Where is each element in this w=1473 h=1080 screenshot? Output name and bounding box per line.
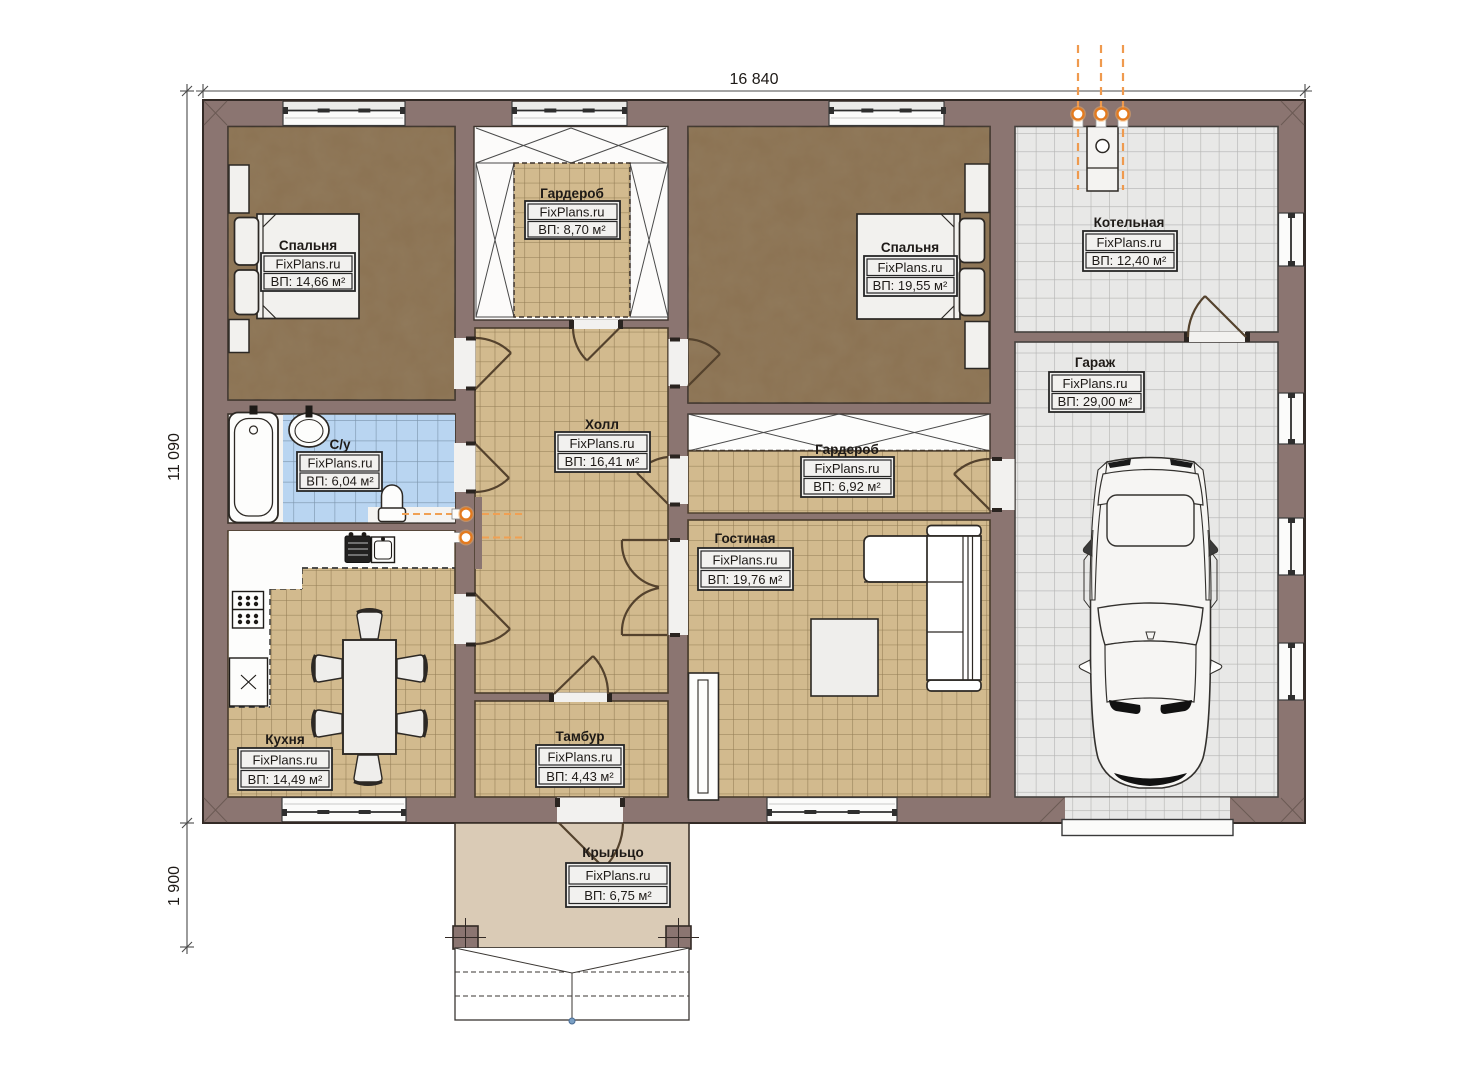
svg-text:FixPlans.ru: FixPlans.ru	[877, 260, 942, 275]
svg-text:ВП: 6,04 м²: ВП: 6,04 м²	[306, 474, 374, 489]
svg-text:ВП: 14,49 м²: ВП: 14,49 м²	[248, 772, 323, 787]
svg-text:ВП: 16,41 м²: ВП: 16,41 м²	[565, 454, 640, 469]
svg-text:ВП: 4,43 м²: ВП: 4,43 м²	[546, 769, 614, 784]
svg-text:ВП: 14,66 м²: ВП: 14,66 м²	[271, 274, 346, 289]
svg-text:ВП: 19,55 м²: ВП: 19,55 м²	[873, 278, 948, 293]
svg-text:FixPlans.ru: FixPlans.ru	[585, 868, 650, 883]
svg-text:С/у: С/у	[329, 437, 351, 452]
svg-text:ВП: 8,70 м²: ВП: 8,70 м²	[538, 222, 606, 237]
svg-text:FixPlans.ru: FixPlans.ru	[569, 436, 634, 451]
svg-text:Спальня: Спальня	[881, 240, 939, 255]
svg-text:ВП: 6,92 м²: ВП: 6,92 м²	[813, 479, 881, 494]
svg-text:FixPlans.ru: FixPlans.ru	[539, 205, 604, 220]
svg-text:FixPlans.ru: FixPlans.ru	[275, 257, 340, 272]
svg-text:ВП: 12,40 м²: ВП: 12,40 м²	[1092, 253, 1167, 268]
svg-text:ВП: 19,76 м²: ВП: 19,76 м²	[708, 572, 783, 587]
svg-text:FixPlans.ru: FixPlans.ru	[1062, 376, 1127, 391]
svg-text:Гардероб: Гардероб	[540, 186, 604, 201]
svg-text:Котельная: Котельная	[1094, 215, 1165, 230]
svg-text:Холл: Холл	[585, 417, 619, 432]
svg-text:Гостиная: Гостиная	[714, 531, 775, 546]
svg-text:FixPlans.ru: FixPlans.ru	[547, 750, 612, 765]
svg-text:Крыльцо: Крыльцо	[582, 845, 643, 860]
svg-text:FixPlans.ru: FixPlans.ru	[712, 553, 777, 568]
svg-text:FixPlans.ru: FixPlans.ru	[814, 461, 879, 476]
svg-text:1 900: 1 900	[166, 866, 183, 906]
svg-text:FixPlans.ru: FixPlans.ru	[1096, 235, 1161, 250]
svg-text:ВП: 6,75 м²: ВП: 6,75 м²	[584, 888, 652, 903]
svg-text:Гараж: Гараж	[1075, 355, 1116, 370]
svg-text:Тамбур: Тамбур	[556, 729, 605, 744]
svg-text:FixPlans.ru: FixPlans.ru	[307, 456, 372, 471]
svg-text:Спальня: Спальня	[279, 238, 337, 253]
svg-text:Гардероб: Гардероб	[815, 442, 879, 457]
svg-text:ВП: 29,00 м²: ВП: 29,00 м²	[1058, 394, 1133, 409]
svg-text:11 090: 11 090	[166, 433, 183, 481]
svg-text:16 840: 16 840	[730, 71, 779, 88]
svg-text:Кухня: Кухня	[265, 732, 304, 747]
svg-text:FixPlans.ru: FixPlans.ru	[252, 753, 317, 768]
